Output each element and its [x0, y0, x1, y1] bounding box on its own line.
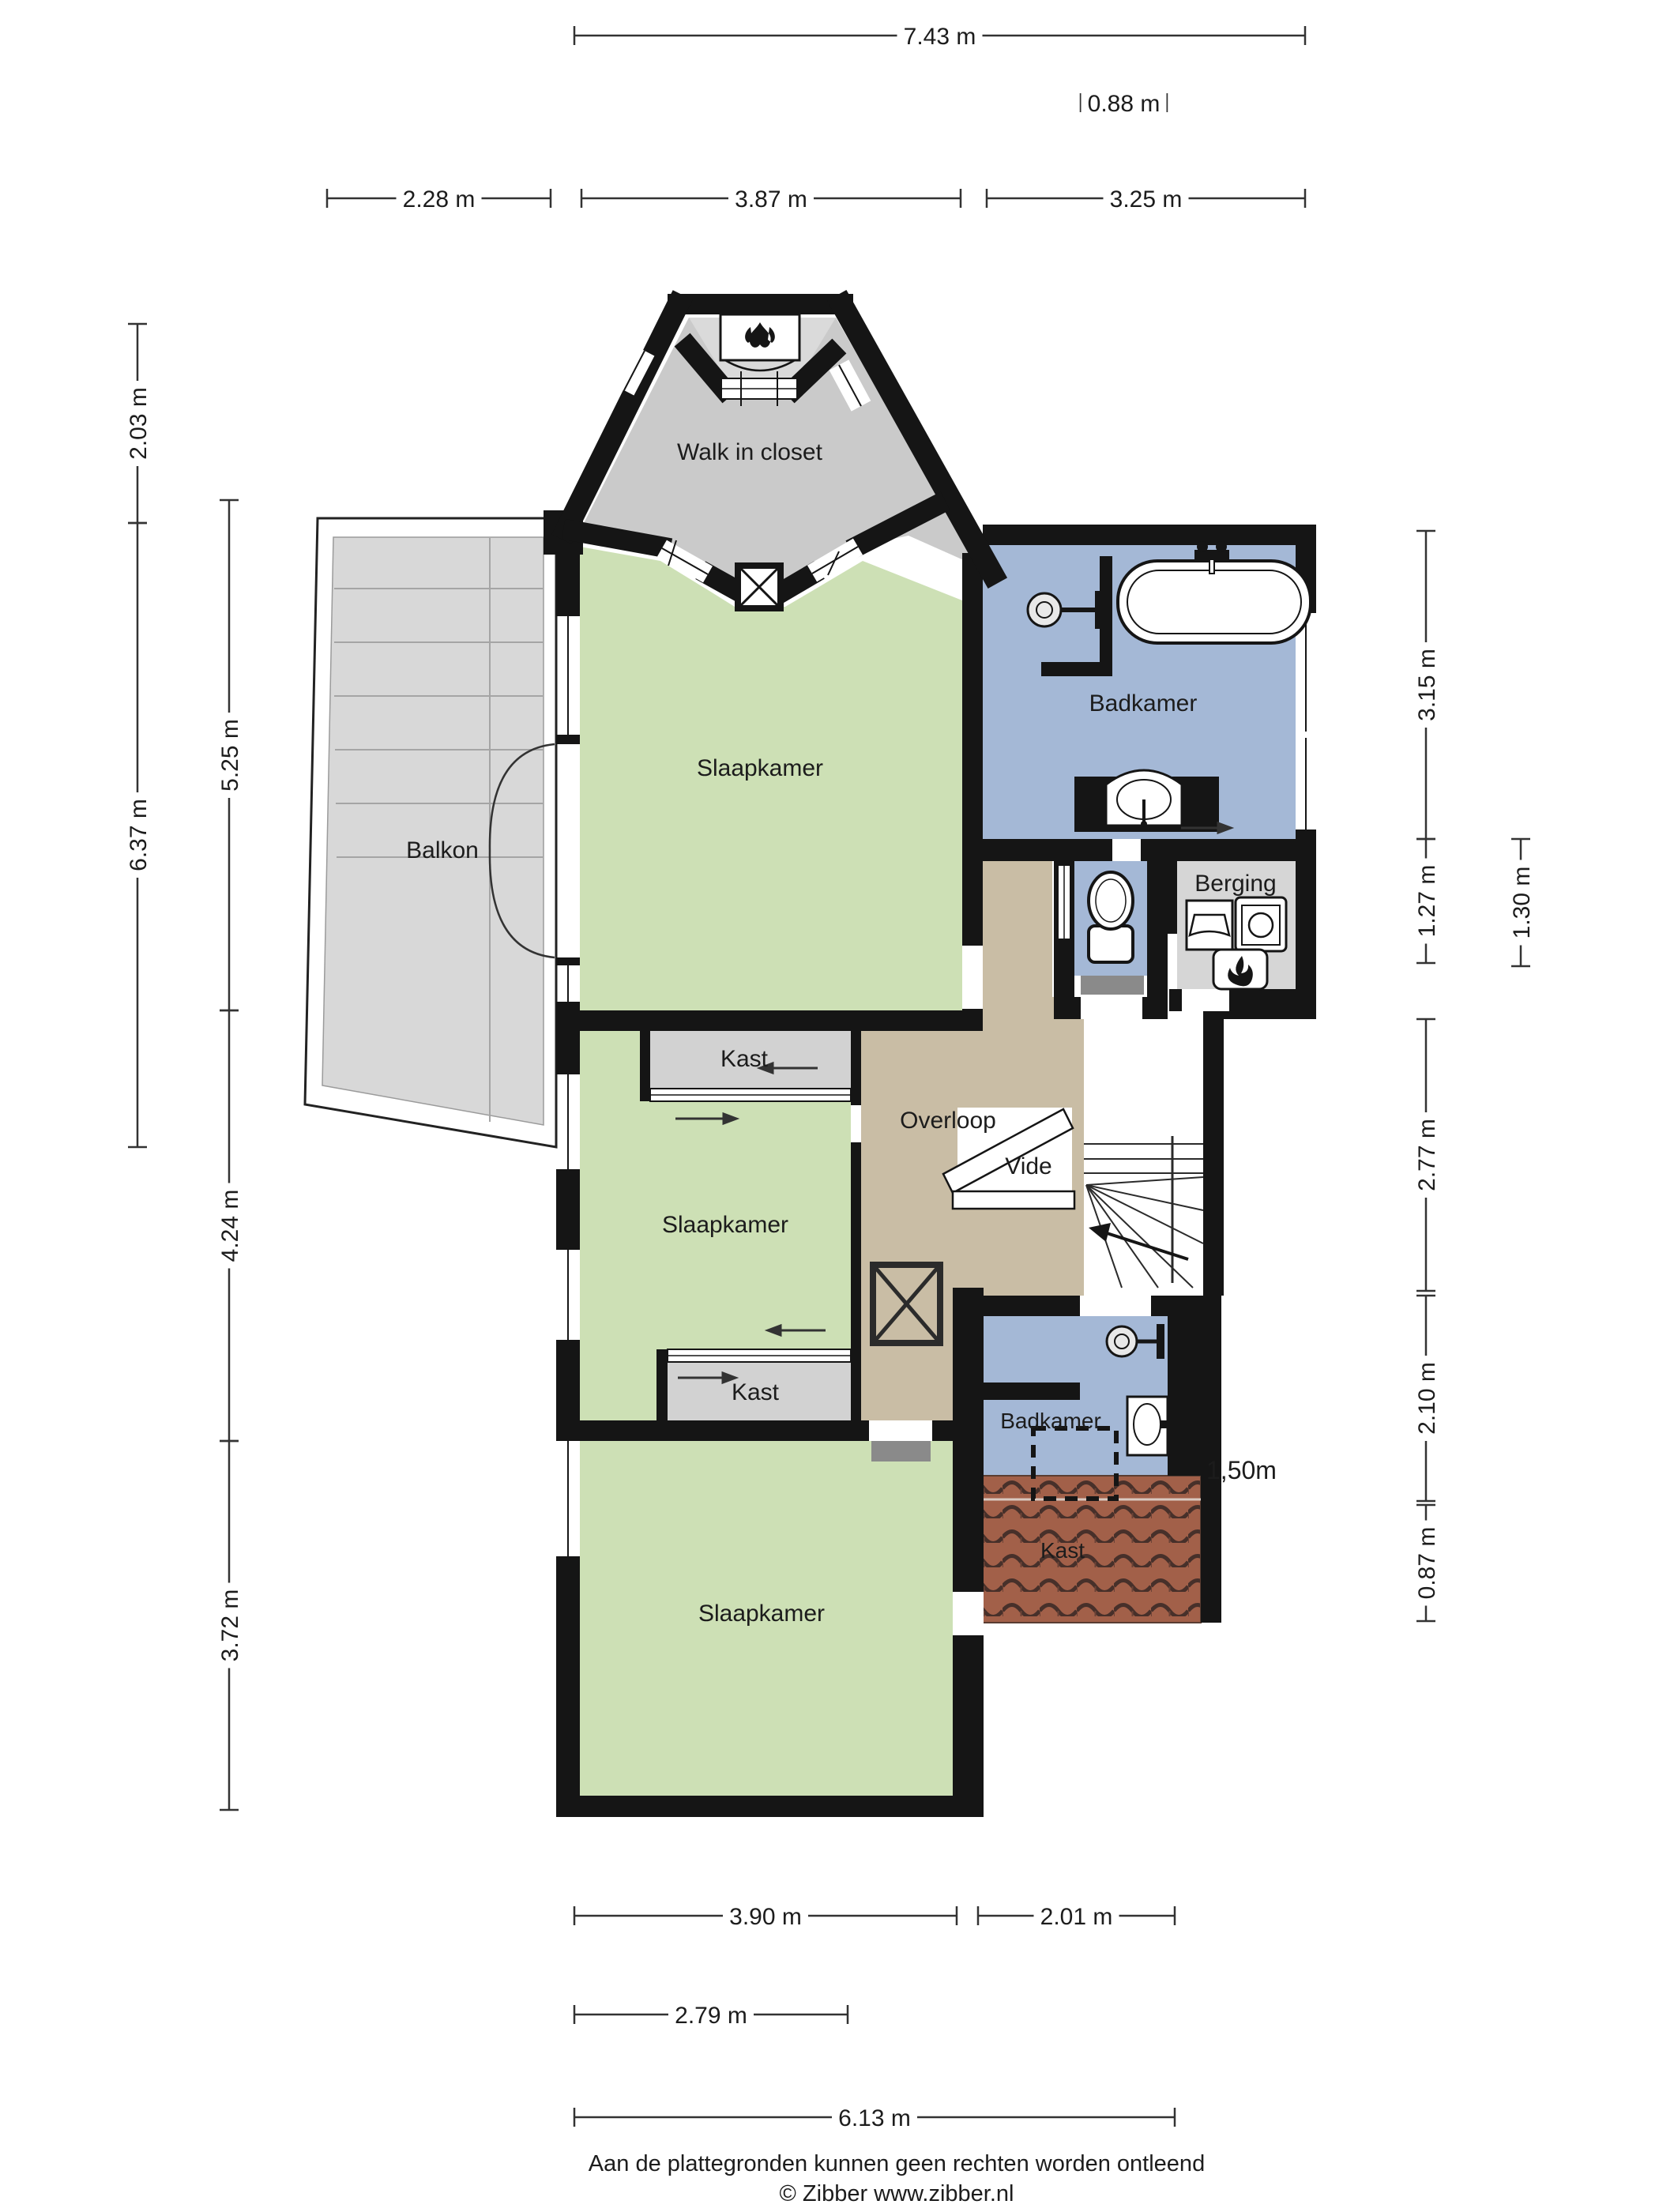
sink-icon: [1127, 1397, 1168, 1455]
dimension-label-right-0: 3.15 m: [1414, 649, 1440, 721]
label-kast-roof: Kast: [1040, 1538, 1085, 1563]
stairs-area: [1084, 1019, 1203, 1288]
dimension-label-top-3: 3.87 m: [735, 186, 807, 213]
label-slaapkamer-top: Slaapkamer: [697, 755, 823, 781]
shaft-cross-icon: [873, 1265, 940, 1343]
dimension-label-bottom-3: 6.13 m: [838, 2105, 911, 2131]
dimension-bottom-1: 2.01 m: [978, 1900, 1175, 1932]
label-vide: Vide: [1005, 1153, 1052, 1179]
dimension-right-4: 2.10 m: [1410, 1296, 1442, 1501]
label-walk-in-closet: Walk in closet: [677, 439, 823, 465]
footer-copyright: © Zibber www.zibber.nl: [780, 2181, 1014, 2206]
balcony: [305, 518, 556, 1147]
label-berging: Berging: [1194, 871, 1276, 897]
label-badkamer-top: Badkamer: [1089, 690, 1198, 717]
label-slaapkamer-bottom: Slaapkamer: [698, 1601, 825, 1627]
dimension-label-left-2: 5.25 m: [217, 719, 243, 792]
dimension-label-right-1: 1.27 m: [1414, 865, 1440, 938]
dimension-top-0: 7.43 m: [574, 20, 1305, 51]
toilet-icon: [1089, 872, 1133, 962]
footer-disclaimer: Aan de plattegronden kunnen geen rechten…: [589, 2151, 1205, 2176]
dimension-label-bottom-0: 3.90 m: [729, 1904, 802, 1930]
dimension-label-right-5: 0.87 m: [1414, 1527, 1440, 1600]
door-mat: [871, 1441, 931, 1461]
label-overloop: Overloop: [900, 1108, 996, 1134]
dimension-right-2: 1.30 m: [1505, 839, 1537, 966]
dimension-label-bottom-1: 2.01 m: [1040, 1904, 1113, 1930]
dimension-label-left-3: 4.24 m: [217, 1190, 243, 1262]
label-kast-mid: Kast: [732, 1379, 780, 1405]
sink-icon: [1074, 770, 1219, 832]
dimension-label-left-0: 2.03 m: [126, 387, 152, 460]
floor-plan: Walk in closet Slaapkamer Badkamer Bergi…: [0, 0, 1659, 2212]
dimension-label-top-0: 7.43 m: [904, 24, 976, 50]
dimension-right-1: 1.27 m: [1410, 839, 1442, 963]
dimension-right-3: 2.77 m: [1410, 1019, 1442, 1291]
dimension-top-4: 3.25 m: [987, 182, 1305, 214]
dimension-label-left-4: 3.72 m: [217, 1589, 243, 1662]
dimension-label-left-1: 6.37 m: [126, 799, 152, 871]
label-badkamer-bottom: Badkamer: [1000, 1409, 1101, 1433]
dimension-label-right-2: 1.30 m: [1509, 867, 1535, 939]
label-balkon: Balkon: [406, 837, 479, 863]
dimension-left-1: 6.37 m: [122, 523, 153, 1147]
dimension-label-top-2: 2.28 m: [403, 186, 476, 213]
dimension-right-0: 3.15 m: [1410, 531, 1442, 839]
dimension-label-right-3: 2.77 m: [1414, 1119, 1440, 1191]
dimension-label-top-4: 3.25 m: [1110, 186, 1183, 213]
dimension-label-bottom-2: 2.79 m: [675, 2003, 747, 2029]
dimension-label-right-4: 2.10 m: [1414, 1362, 1440, 1435]
balcony-deck: [322, 537, 544, 1125]
dimension-bottom-0: 3.90 m: [574, 1900, 957, 1932]
door-mat: [1081, 976, 1144, 995]
label-slaapkamer-mid: Slaapkamer: [662, 1212, 788, 1238]
shaft-cross-icon: [735, 562, 784, 611]
dimension-left-2: 5.25 m: [213, 500, 245, 1010]
laundry-sink-icon: [1187, 901, 1232, 950]
dimension-bottom-2: 2.79 m: [574, 1999, 848, 2030]
dimension-right-5: 0.87 m: [1410, 1505, 1442, 1621]
washing-machine-icon: [1236, 897, 1286, 951]
label-headroom-150: 1,50m: [1206, 1456, 1277, 1484]
boiler-flame-icon: [1213, 950, 1267, 989]
dimension-left-3: 4.24 m: [213, 1010, 245, 1441]
dimension-label-top-1: 0.88 m: [1088, 91, 1161, 117]
dimension-top-2: 2.28 m: [327, 182, 551, 214]
dimension-bottom-3: 6.13 m: [574, 2101, 1175, 2133]
dimension-left-4: 3.72 m: [213, 1441, 245, 1810]
dimension-top-1: 0.88 m: [1081, 87, 1167, 118]
dimension-top-3: 3.87 m: [581, 182, 961, 214]
dimension-left-0: 2.03 m: [122, 324, 153, 523]
label-kast-top: Kast: [720, 1046, 769, 1072]
